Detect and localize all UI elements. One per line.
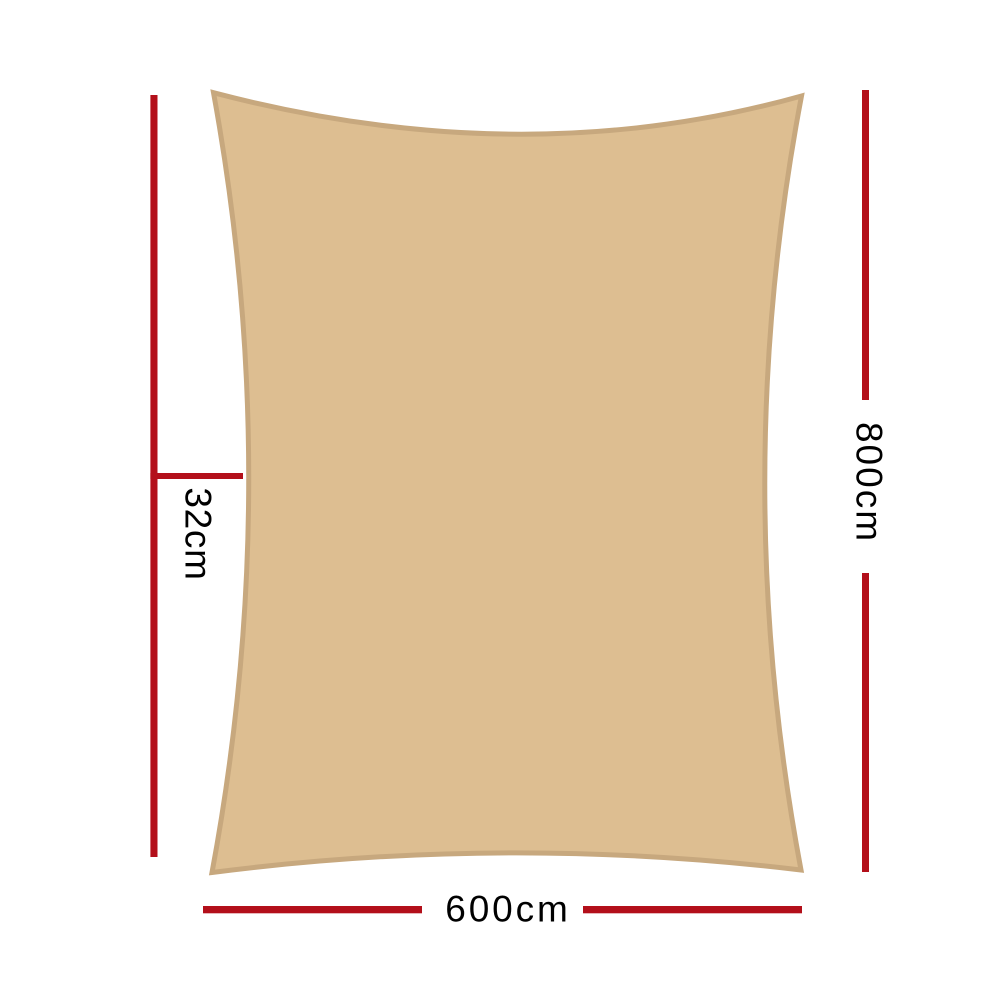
svg-text:800cm: 800cm (849, 422, 890, 543)
svg-text:32cm: 32cm (178, 487, 219, 580)
svg-text:600cm: 600cm (445, 889, 571, 930)
